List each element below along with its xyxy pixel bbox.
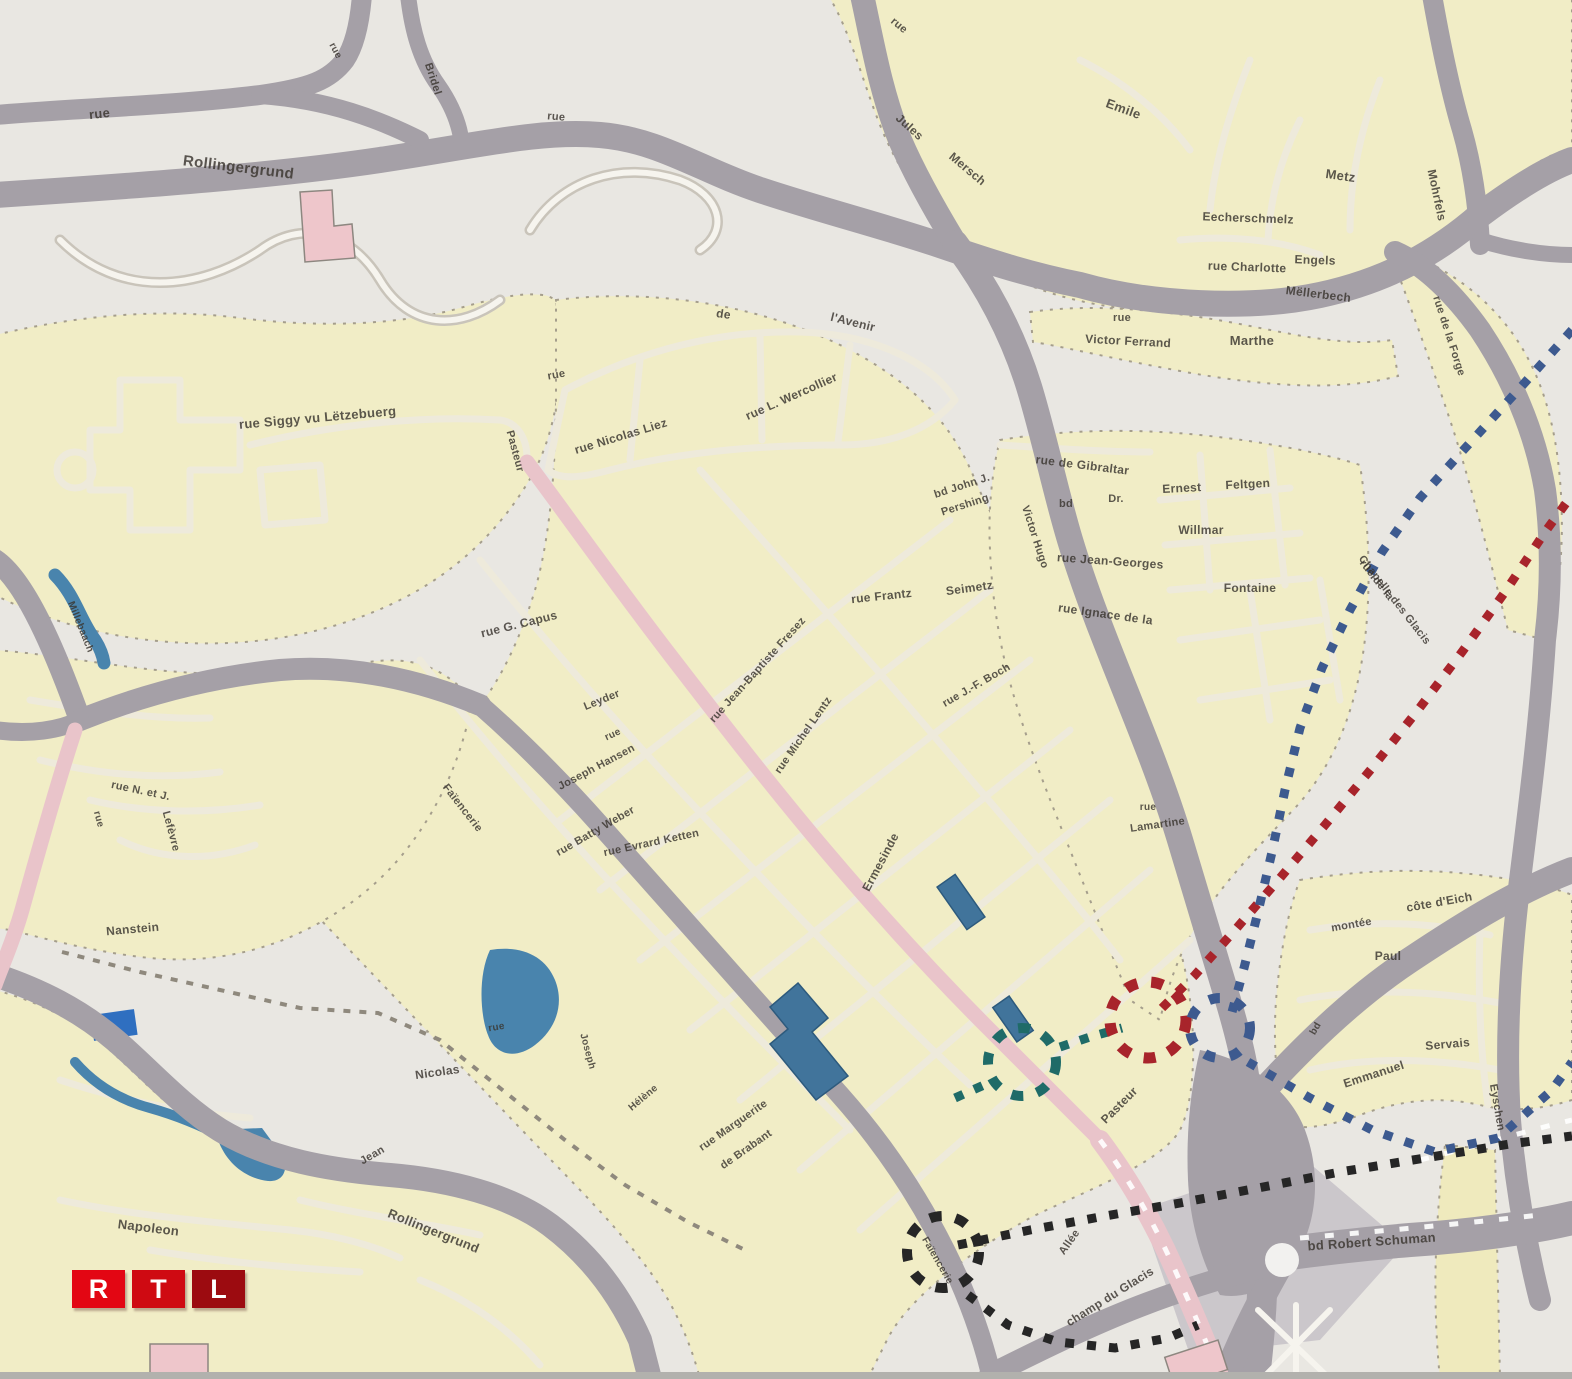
street-label: rue xyxy=(88,105,111,122)
street-label: Feltgen xyxy=(1225,476,1270,492)
zone-victor-ferrand xyxy=(1030,308,1398,386)
street-label: Willmar xyxy=(1178,523,1223,537)
street-label: Engels xyxy=(1294,252,1336,267)
rtl-logo-letter-t: T xyxy=(132,1270,185,1308)
pink-building-rollingergrund xyxy=(300,190,355,262)
street-label: rue Charlotte xyxy=(1208,259,1287,276)
rtl-logo-letter-r: R xyxy=(72,1270,125,1308)
street-label: l'Avenir xyxy=(829,310,877,335)
rtl-logo-letter-l: L xyxy=(192,1270,245,1308)
rtl-logo: R T L xyxy=(72,1270,245,1308)
street-label: Marthe xyxy=(1230,333,1274,348)
street-label: Ernest xyxy=(1162,480,1202,496)
street-label: rue xyxy=(547,110,566,124)
street-label: Nicolas xyxy=(414,1062,460,1082)
street-label: rue xyxy=(1113,312,1131,324)
street-label: bd xyxy=(1059,498,1073,510)
map-screenshot: rueRollingergrundrueBridelruerueJulesMer… xyxy=(0,0,1572,1379)
street-label: de xyxy=(715,306,731,322)
map-canvas: rueRollingergrundrueBridelruerueJulesMer… xyxy=(0,0,1572,1379)
schuman-roundabout xyxy=(1265,1243,1299,1277)
street-label: rue xyxy=(1140,802,1157,813)
street-label: Fontaine xyxy=(1224,581,1276,595)
zone-tram-strip xyxy=(1435,1145,1500,1379)
photo-edge-strip xyxy=(0,1372,1572,1379)
street-label: Allée xyxy=(1057,1227,1083,1257)
street-label: Paul xyxy=(1375,949,1402,963)
street-label: Dr. xyxy=(1108,493,1124,505)
